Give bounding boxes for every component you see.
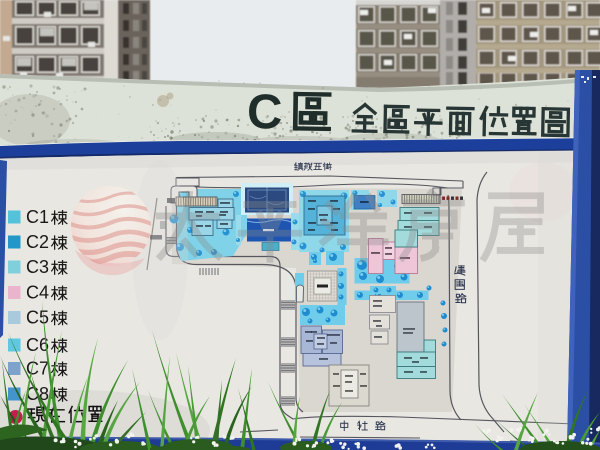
svg-text:C5: C5 — [26, 308, 49, 328]
svg-text:C4: C4 — [26, 283, 49, 303]
svg-text:C3: C3 — [26, 257, 49, 277]
svg-text:C2: C2 — [26, 232, 49, 252]
svg-text:C: C — [247, 85, 283, 140]
svg-text:C7: C7 — [26, 359, 49, 379]
svg-text:C1: C1 — [26, 207, 49, 227]
